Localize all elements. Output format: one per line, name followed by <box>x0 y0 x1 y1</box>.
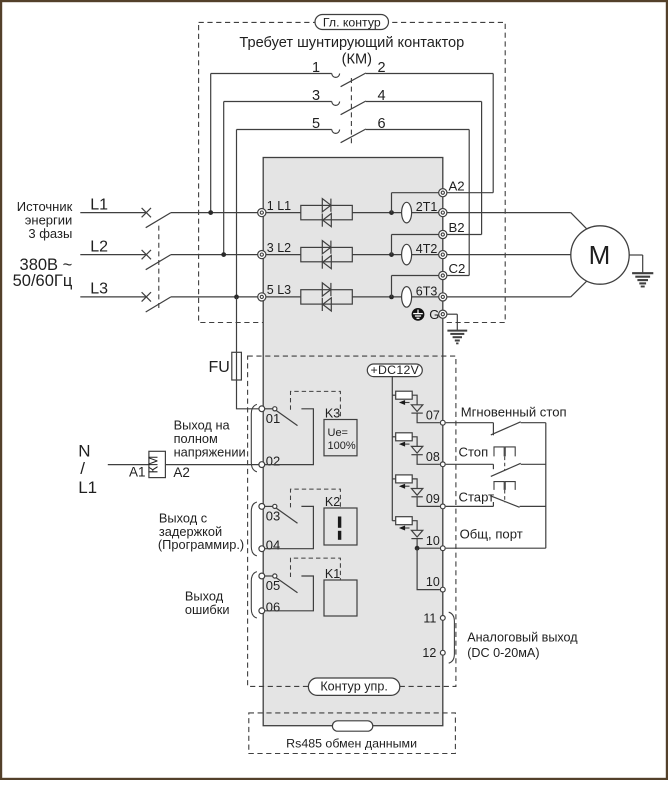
svg-text:1 L1: 1 L1 <box>267 199 291 213</box>
svg-text:05: 05 <box>266 578 280 593</box>
svg-text:L1: L1 <box>90 196 108 213</box>
svg-text:Стоп: Стоп <box>459 445 489 460</box>
svg-text:Аналоговый выход: Аналоговый выход <box>467 631 578 645</box>
svg-text:3: 3 <box>312 88 320 104</box>
svg-text:K2: K2 <box>325 495 340 509</box>
svg-text:2: 2 <box>377 60 385 76</box>
svg-text:Rs485 обмен данными: Rs485 обмен данными <box>286 736 417 750</box>
svg-text:Требует шунтирующий контактор: Требует шунтирующий контактор <box>239 35 464 51</box>
svg-text:Общ, порт: Общ, порт <box>460 527 523 542</box>
svg-text:G: G <box>429 307 439 322</box>
svg-text:(КМ): (КМ) <box>342 52 372 68</box>
svg-text:01: 01 <box>266 411 280 426</box>
svg-text:08: 08 <box>426 450 440 464</box>
svg-text:1: 1 <box>312 60 320 76</box>
svg-text:50/60Гц: 50/60Гц <box>13 272 73 290</box>
svg-text:10: 10 <box>426 575 440 589</box>
svg-text:02: 02 <box>266 453 280 468</box>
svg-text:04: 04 <box>266 538 280 553</box>
svg-text:C2: C2 <box>449 261 466 276</box>
svg-text:K3: K3 <box>325 406 340 420</box>
svg-text:3 фазы: 3 фазы <box>28 226 72 241</box>
svg-text:6T3: 6T3 <box>416 284 438 298</box>
svg-text:10: 10 <box>426 534 440 548</box>
svg-text:Мгновенный стоп: Мгновенный стоп <box>461 404 567 419</box>
svg-text:FU: FU <box>209 359 230 376</box>
svg-text:12: 12 <box>422 646 436 660</box>
svg-text:(DC 0-20мА): (DC 0-20мА) <box>467 646 539 660</box>
svg-text:09: 09 <box>426 492 440 506</box>
svg-text:5 L3: 5 L3 <box>267 283 291 297</box>
svg-text:A1: A1 <box>129 464 146 479</box>
svg-text:4: 4 <box>377 88 385 104</box>
svg-text:Старт: Старт <box>459 490 495 505</box>
svg-text:L2: L2 <box>90 238 108 255</box>
svg-text:100%: 100% <box>328 440 356 452</box>
svg-text:06: 06 <box>266 600 280 615</box>
svg-text:напряжении: напряжении <box>174 444 246 459</box>
svg-text:07: 07 <box>426 408 440 422</box>
svg-text:A2: A2 <box>449 178 465 193</box>
svg-text:ошибки: ошибки <box>185 602 230 617</box>
svg-text:03: 03 <box>266 509 280 524</box>
svg-text:K1: K1 <box>325 567 340 581</box>
svg-text:A2: A2 <box>173 465 190 480</box>
svg-text:N: N <box>78 441 90 460</box>
svg-text:КМ: КМ <box>147 456 161 474</box>
svg-text:L1: L1 <box>78 478 97 497</box>
svg-text:M: M <box>589 240 611 270</box>
svg-text:6: 6 <box>377 116 385 132</box>
svg-text:B2: B2 <box>449 220 465 235</box>
svg-text:+DC12V: +DC12V <box>370 363 419 377</box>
svg-text:L3: L3 <box>90 281 108 298</box>
svg-text:4T2: 4T2 <box>416 242 438 256</box>
svg-text:(Программир.): (Программир.) <box>158 537 244 552</box>
svg-text:11: 11 <box>423 611 436 625</box>
svg-text:Ue=: Ue= <box>328 427 349 439</box>
svg-text:Гл. контур: Гл. контур <box>323 15 381 29</box>
svg-text:Контур упр.: Контур упр. <box>320 680 387 694</box>
svg-text:5: 5 <box>312 116 320 132</box>
svg-text:3 L2: 3 L2 <box>267 241 291 255</box>
svg-text:2T1: 2T1 <box>416 200 438 214</box>
svg-text:/: / <box>80 459 85 478</box>
